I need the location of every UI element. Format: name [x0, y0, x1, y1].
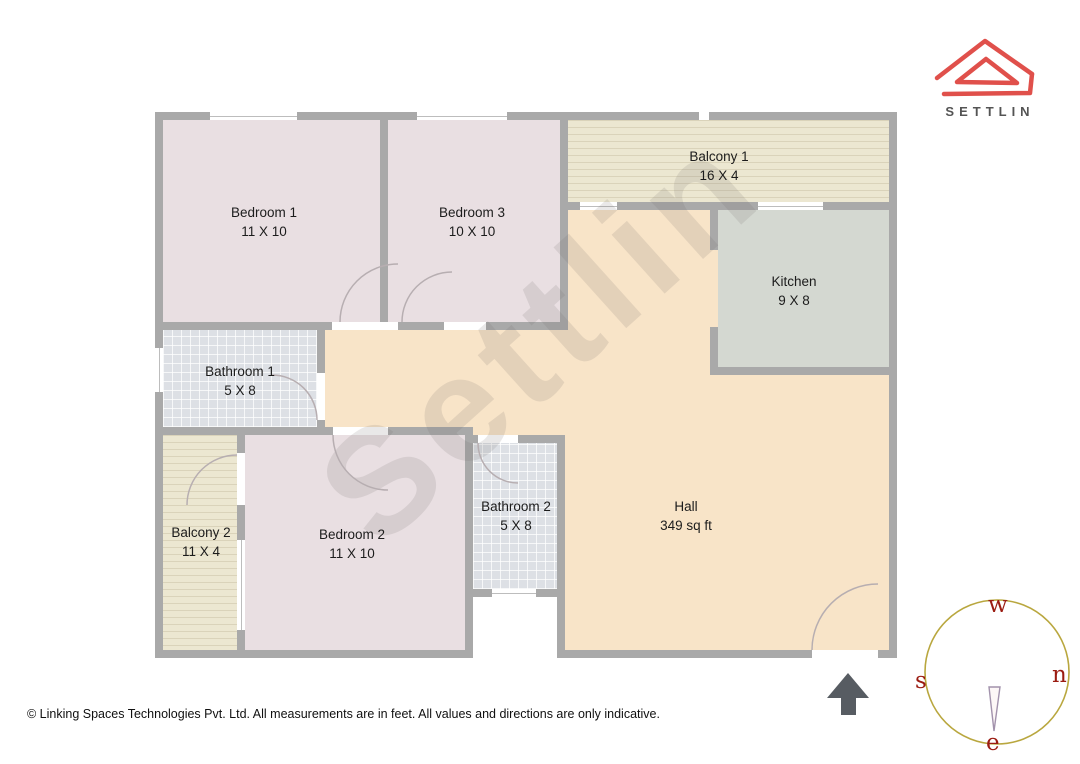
wall-bathroom2-right	[557, 435, 565, 658]
room-size: 5 X 8	[205, 381, 275, 400]
door-balcony-1-access	[580, 202, 617, 210]
window-bedroom-1-top	[210, 112, 297, 120]
room-label-kitchen: Kitchen 9 X 8	[771, 272, 816, 310]
floor-hall-upper-arm	[568, 210, 710, 375]
window-bedroom-3-top	[417, 112, 507, 120]
room-size: 11 X 10	[231, 222, 297, 241]
window-balcony-1-top	[699, 112, 709, 120]
room-name: Balcony 1	[689, 147, 748, 166]
compass-letter-n: n	[1052, 662, 1067, 688]
wall-kitchen-bottom	[710, 367, 897, 375]
footer-disclaimer: © Linking Spaces Technologies Pvt. Ltd. …	[27, 707, 660, 721]
room-size: 10 X 10	[439, 222, 505, 241]
wall-outer-right	[889, 112, 897, 658]
compass-needle	[989, 687, 1000, 731]
compass-letter-w: w	[988, 592, 1008, 618]
door-gap-bathroom-1	[317, 373, 325, 420]
room-size: 5 X 8	[481, 516, 551, 535]
room-label-hall: Hall 349 sq ft	[660, 497, 712, 535]
room-size: 11 X 4	[171, 542, 230, 561]
window-bathroom-2-bottom	[492, 589, 536, 597]
compass	[925, 600, 1069, 744]
window-bathroom-1-left	[155, 348, 163, 392]
room-label-bathroom-1: Bathroom 1 5 X 8	[205, 362, 275, 400]
settlin-logo: SETTLIN	[920, 30, 1060, 119]
room-size: 11 X 10	[319, 544, 385, 563]
room-name: Bathroom 2	[481, 497, 551, 516]
compass-circle	[925, 600, 1069, 744]
door-gap-bedroom-1	[332, 322, 398, 330]
room-label-bedroom-1: Bedroom 1 11 X 10	[231, 203, 297, 241]
floor-hall-sliver	[473, 427, 568, 435]
entrance-arrow-stem	[841, 698, 856, 715]
door-gap-balcony-2	[237, 453, 245, 505]
compass-letter-s: s	[915, 668, 927, 694]
room-label-bedroom-3: Bedroom 3 10 X 10	[439, 203, 505, 241]
room-label-balcony-2: Balcony 2 11 X 4	[171, 523, 230, 561]
room-name: Bathroom 1	[205, 362, 275, 381]
entrance-arrow-head	[827, 673, 869, 698]
door-gap-bedroom-3	[444, 322, 486, 330]
room-size: 349 sq ft	[660, 516, 712, 535]
room-name: Bedroom 2	[319, 525, 385, 544]
room-name: Bedroom 1	[231, 203, 297, 222]
room-label-bathroom-2: Bathroom 2 5 X 8	[481, 497, 551, 535]
room-label-balcony-1: Balcony 1 16 X 4	[689, 147, 748, 185]
wall-bedroom1-3-divider	[380, 112, 388, 330]
doorway-kitchen-opening	[710, 250, 718, 327]
window-balcony-2-wall	[237, 540, 245, 630]
wall-outer-bottom-left	[155, 650, 473, 658]
door-gap-hall-entrance	[812, 650, 878, 658]
compass-letter-e: e	[986, 730, 1000, 756]
entrance-arrow	[827, 673, 869, 715]
room-name: Balcony 2	[171, 523, 230, 542]
floor-hall-main	[565, 375, 889, 650]
brand-wordmark: SETTLIN	[920, 104, 1060, 119]
room-name: Kitchen	[771, 272, 816, 291]
wall-bedroom2-right	[465, 427, 473, 658]
room-name: Hall	[660, 497, 712, 516]
door-gap-bedroom-2	[333, 427, 388, 435]
door-gap-bathroom-2	[478, 435, 518, 443]
floor-plan-page: w n s e Settlin Bedroom 1 11 X 10 Bedroo…	[0, 0, 1080, 764]
room-size: 9 X 8	[771, 291, 816, 310]
wall-bedroom3-hall	[560, 112, 568, 330]
window-kitchen-top	[758, 202, 823, 210]
room-size: 16 X 4	[689, 166, 748, 185]
room-label-bedroom-2: Bedroom 2 11 X 10	[319, 525, 385, 563]
room-name: Bedroom 3	[439, 203, 505, 222]
